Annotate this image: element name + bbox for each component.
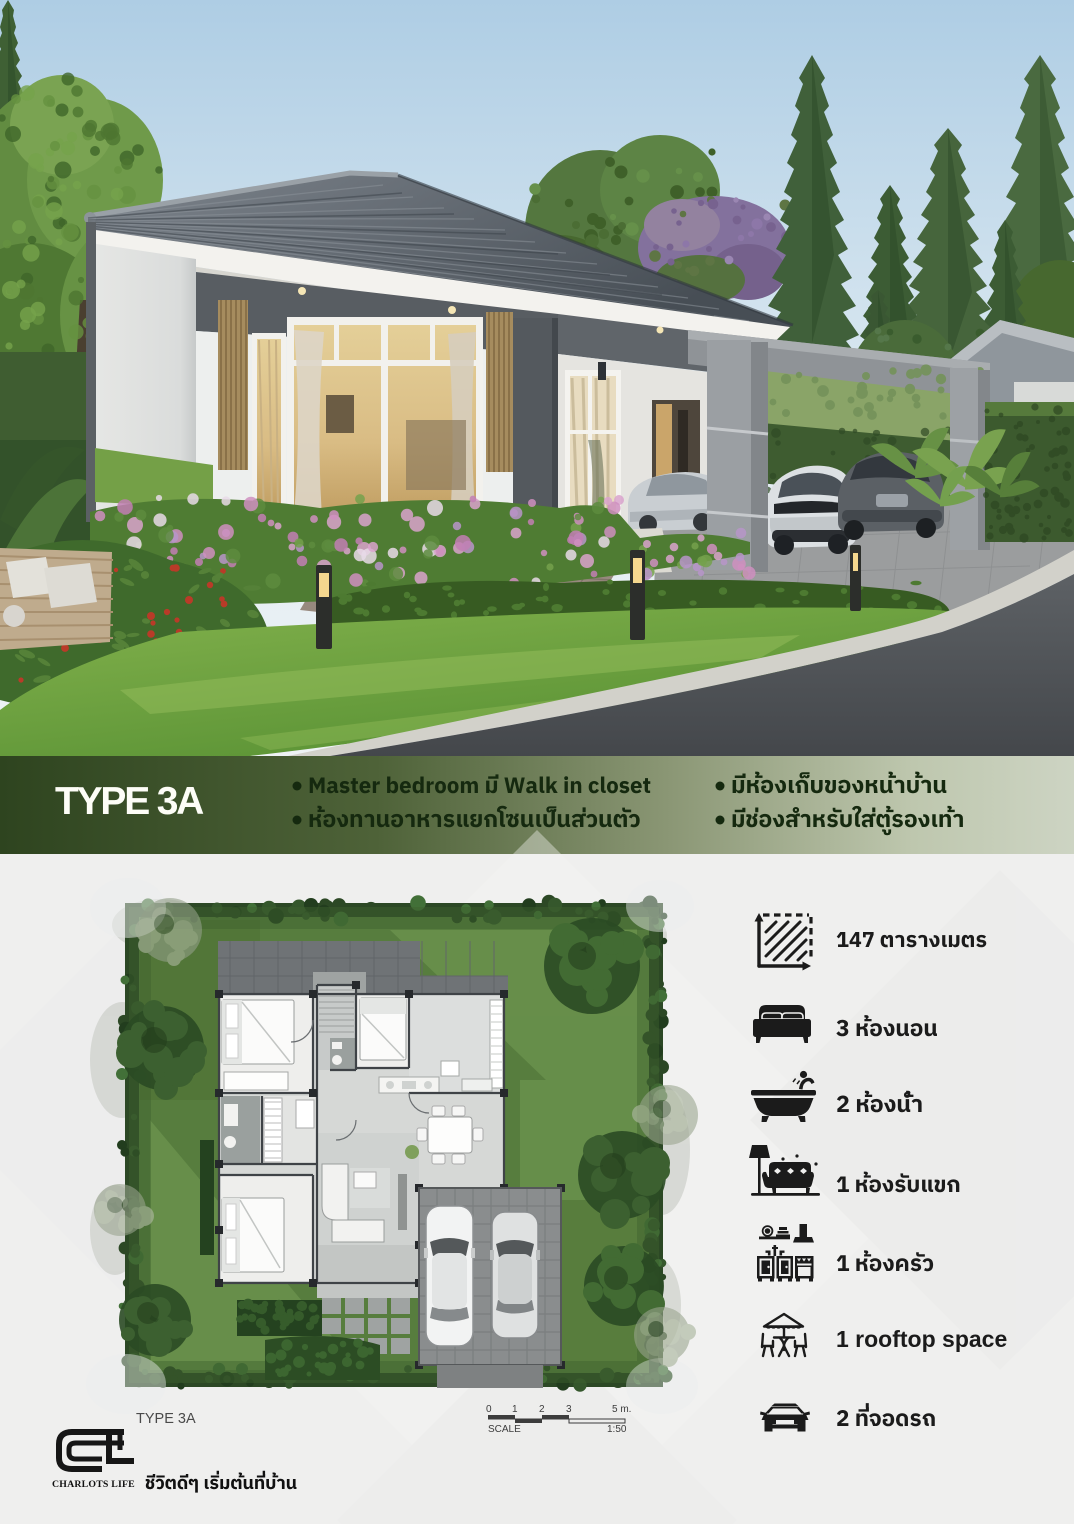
- svg-text:TYPE 3A: TYPE 3A: [55, 780, 204, 823]
- svg-text:0: 0: [486, 1404, 492, 1415]
- svg-text:1 rooftop space: 1 rooftop space: [836, 1326, 1007, 1352]
- svg-text:3: 3: [566, 1404, 572, 1415]
- svg-text:1:50: 1:50: [607, 1424, 627, 1435]
- svg-text:SCALE: SCALE: [488, 1424, 521, 1435]
- svg-text:TYPE 3A: TYPE 3A: [136, 1411, 196, 1427]
- svg-text:5 m.: 5 m.: [612, 1404, 631, 1415]
- svg-text:2: 2: [539, 1404, 545, 1415]
- svg-text:CHARLOTS LIFE: CHARLOTS LIFE: [52, 1479, 135, 1490]
- svg-text:1: 1: [512, 1404, 518, 1415]
